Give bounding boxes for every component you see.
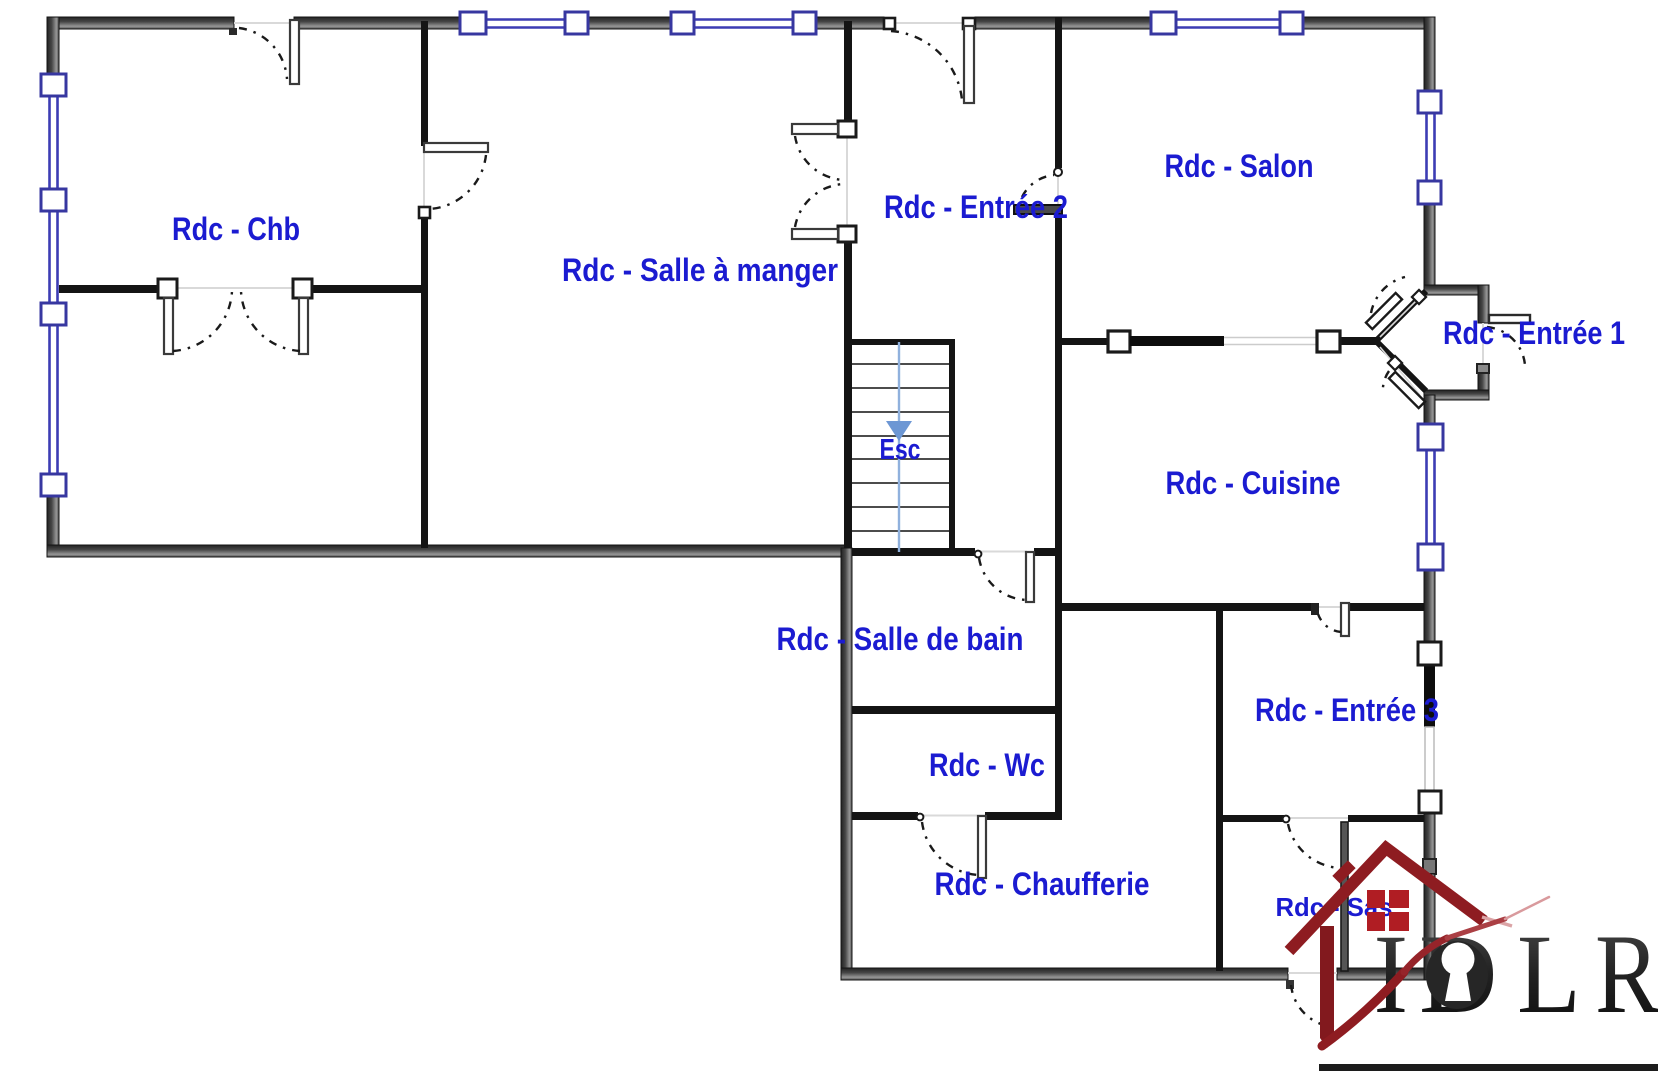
svg-text:Rdc - Entrée 3: Rdc - Entrée 3: [1255, 692, 1439, 728]
svg-text:Rdc - Salon: Rdc - Salon: [1165, 148, 1314, 184]
svg-text:Rdc - Entrée 2: Rdc - Entrée 2: [884, 189, 1068, 225]
svg-text:Rdc - Entrée 1: Rdc - Entrée 1: [1443, 315, 1625, 351]
svg-text:Rdc - Cuisine: Rdc - Cuisine: [1166, 465, 1341, 501]
svg-text:Rdc - Chaufferie: Rdc - Chaufferie: [935, 866, 1150, 902]
svg-text:Rdc - Salle à manger: Rdc - Salle à manger: [562, 252, 838, 288]
svg-text:Esc: Esc: [880, 434, 921, 466]
svg-text:Rdc - Salle de bain: Rdc - Salle de bain: [777, 621, 1024, 657]
svg-text:Rdc - Chb: Rdc - Chb: [172, 211, 300, 247]
svg-text:L: L: [1517, 911, 1581, 1037]
svg-text:R: R: [1595, 911, 1658, 1037]
svg-text:Rdc - Wc: Rdc - Wc: [929, 747, 1045, 783]
